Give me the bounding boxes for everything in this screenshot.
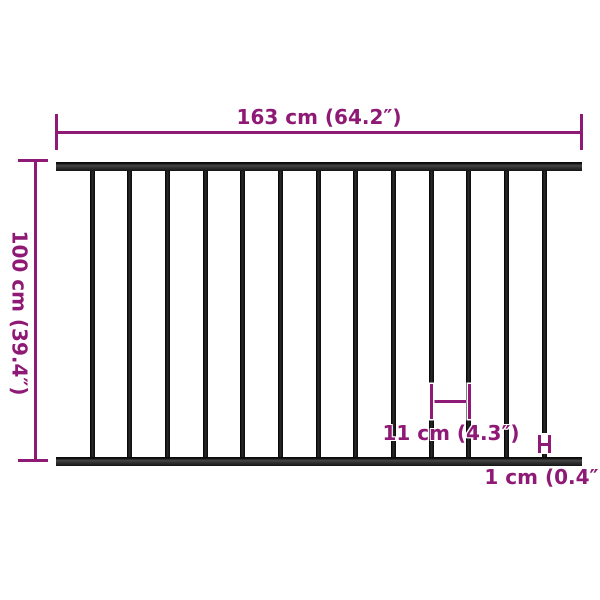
height-dimension-end-tick [18, 459, 48, 462]
width-dimension-end-tick [580, 114, 583, 150]
bar-gap-dimension-line [432, 400, 470, 403]
fence-bar [240, 171, 245, 457]
fence-bar [278, 171, 283, 457]
fence-bar [542, 171, 547, 457]
bar-gap-dimension-end-tick [468, 384, 471, 419]
fence-bar [165, 171, 170, 457]
fence-bar [504, 171, 509, 457]
bar-thickness-connector-line [541, 443, 548, 446]
fence-bar [90, 171, 95, 457]
fence-dimension-diagram: 163 cm (64.2″) 100 cm (39.4″) 11 cm (4.3… [0, 0, 600, 600]
fence-bar [353, 171, 358, 457]
width-dimension-line [56, 131, 582, 134]
fence-bar [316, 171, 321, 457]
height-dimension-start-tick [18, 159, 48, 162]
fence-bar [391, 171, 396, 457]
bar-gap-dimension-label: 11 cm (4.3″) [382, 422, 519, 445]
height-dimension-line [34, 160, 37, 462]
bar-gap-dimension-start-tick [430, 384, 433, 419]
fence-top-rail [56, 162, 582, 171]
bar-thickness-dimension-label: 1 cm (0.4″) [484, 466, 600, 489]
height-dimension-label: 100 cm (39.4″) [8, 231, 31, 396]
width-dimension-start-tick [55, 114, 58, 150]
bar-thickness-end-tick [548, 435, 551, 453]
width-dimension-label: 163 cm (64.2″) [237, 106, 402, 129]
fence-bar [127, 171, 132, 457]
fence-bar [203, 171, 208, 457]
